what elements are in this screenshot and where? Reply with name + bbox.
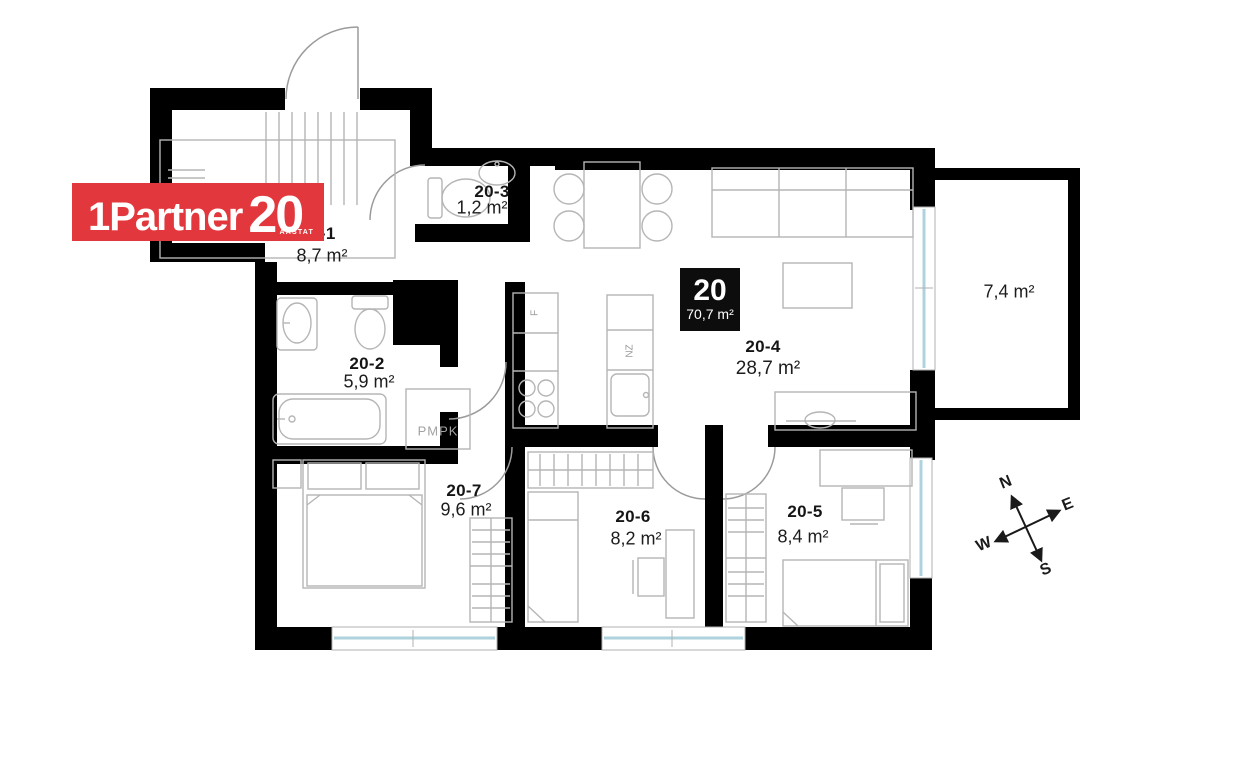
wardrobe-20-5 [726, 494, 766, 622]
room-area-20-1: 8,7 m² [296, 246, 347, 267]
floor-plan-drawing [0, 0, 1241, 761]
pmpk-unit [406, 389, 470, 449]
bathtub [273, 394, 386, 444]
room-id-20-5: 20-5 [787, 502, 822, 522]
nightstand [273, 460, 301, 488]
coffee-table [783, 263, 852, 308]
shelving-20-6 [528, 452, 653, 488]
kitchen-counter-right [607, 295, 653, 428]
dining-chairs [554, 174, 672, 241]
desk-20-6 [666, 530, 694, 618]
room-area-20-3: 1,2 m² [456, 198, 507, 219]
chair-20-5 [842, 488, 884, 524]
unit-total-area: 70,7 m² [686, 306, 733, 323]
logo-brand-text: 1Partner [88, 197, 242, 237]
room-area-20-7: 9,6 m² [440, 500, 491, 521]
room-area-20-5: 8,4 m² [777, 527, 828, 548]
balcony-area-label: 7,4 m² [983, 282, 1034, 303]
chair-20-6 [633, 558, 664, 596]
compass-rose [996, 497, 1059, 560]
unit-badge: 20 70,7 m² [680, 268, 740, 331]
room-id-20-4: 20-4 [745, 337, 780, 357]
sofa [712, 168, 913, 237]
walls [150, 88, 935, 650]
desk-20-5 [820, 450, 912, 486]
double-bed [303, 460, 425, 588]
room-area-20-4: 28,7 m² [736, 358, 800, 380]
logo-subtext: AASTAT [279, 229, 314, 236]
room-id-20-6: 20-6 [615, 507, 650, 527]
single-bed-20-6 [528, 492, 578, 622]
tv-bench [775, 392, 916, 430]
partner-logo: 1Partner 20 AASTAT [72, 183, 324, 241]
dining-table [584, 162, 640, 248]
single-bed-20-5 [783, 560, 908, 626]
room-area-20-6: 8,2 m² [610, 529, 661, 550]
floor-plan-page: 20-1 20-2 20-3 20-4 20-5 20-6 20-7 8,7 m… [0, 0, 1241, 761]
room-area-20-2: 5,9 m² [343, 372, 394, 393]
pmpk-label: PMPK [418, 424, 459, 439]
unit-number: 20 [693, 276, 726, 306]
toilet [352, 296, 388, 349]
room-id-20-7: 20-7 [446, 481, 481, 501]
kitchen-sink [611, 374, 649, 416]
fridge-label: F [530, 310, 541, 316]
washbasin [277, 298, 317, 350]
dishwasher-label: NZ [625, 344, 636, 357]
